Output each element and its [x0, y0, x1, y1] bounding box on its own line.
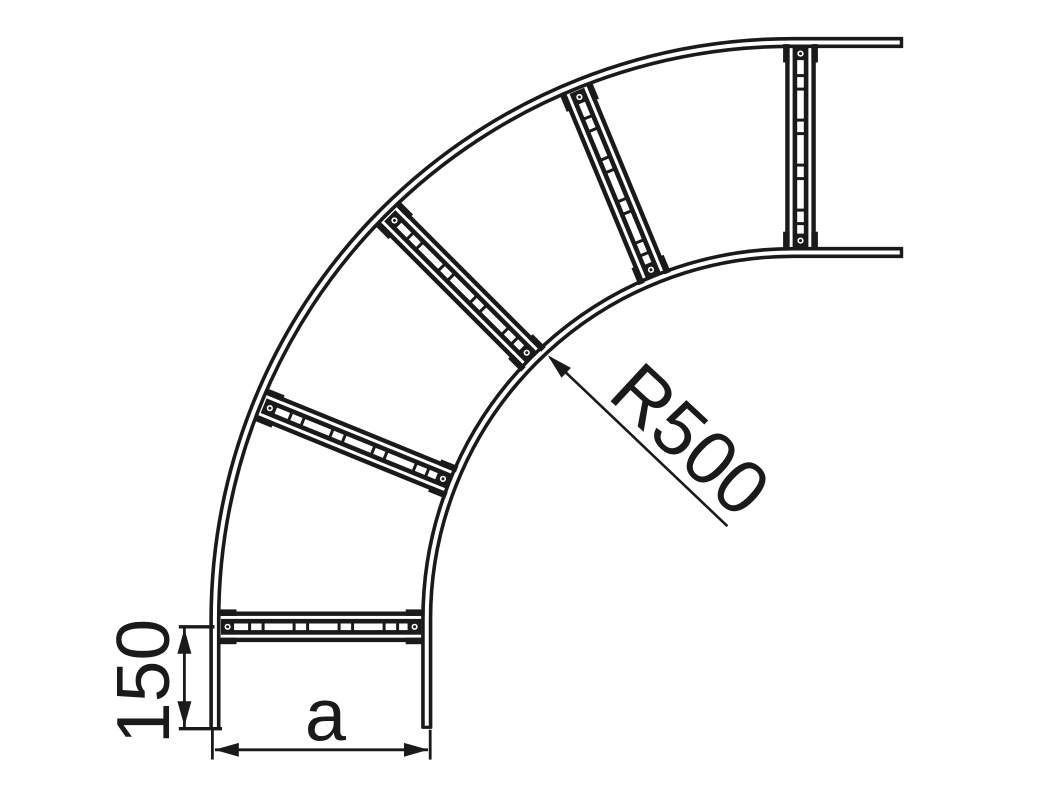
- svg-text:150: 150: [101, 619, 185, 744]
- svg-text:a: a: [305, 674, 347, 757]
